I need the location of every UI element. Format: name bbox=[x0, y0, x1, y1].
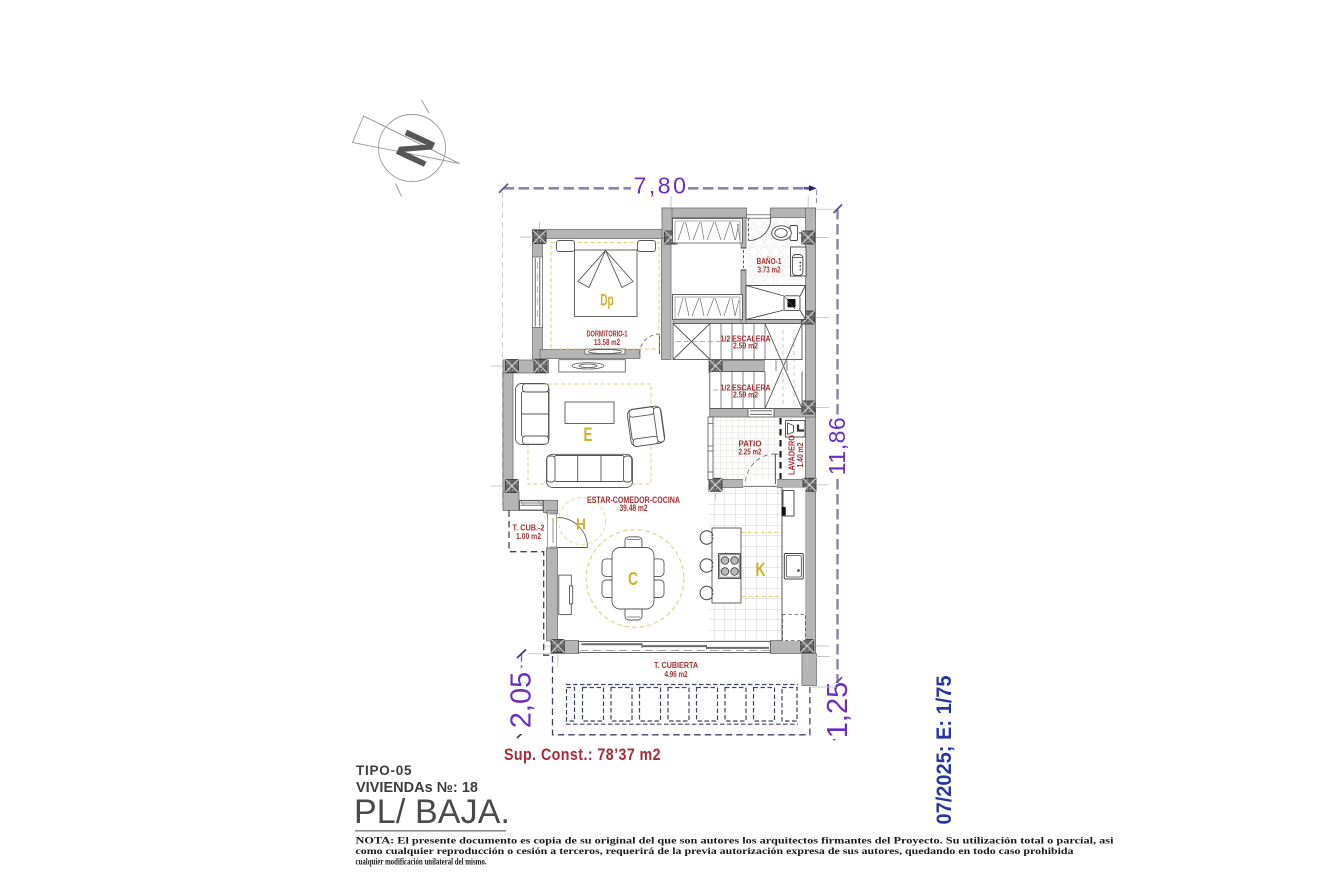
svg-text:2.59 m2: 2.59 m2 bbox=[733, 342, 758, 351]
svg-text:H: H bbox=[576, 517, 586, 534]
svg-text:11,86: 11,86 bbox=[824, 417, 850, 475]
svg-text:T. CUBIERTA: T. CUBIERTA bbox=[654, 661, 698, 670]
svg-text:4.96 m2: 4.96 m2 bbox=[665, 670, 688, 679]
svg-text:3.73 m2: 3.73 m2 bbox=[758, 265, 781, 274]
svg-text:como cualquier reproducción o: como cualquier reproducción o cesión a t… bbox=[356, 847, 1074, 857]
svg-text:NOTA: El presente documento es: NOTA: El presente documento es copia de … bbox=[356, 837, 1114, 847]
svg-text:K: K bbox=[756, 560, 766, 581]
svg-text:1.00 m2: 1.00 m2 bbox=[516, 532, 541, 541]
svg-text:TIPO-05: TIPO-05 bbox=[356, 763, 413, 778]
svg-text:E: E bbox=[584, 424, 593, 446]
svg-text:2.59 m2: 2.59 m2 bbox=[733, 391, 758, 400]
svg-text:7,80: 7,80 bbox=[634, 173, 689, 199]
svg-text:Dp: Dp bbox=[600, 291, 614, 310]
svg-text:C: C bbox=[628, 569, 638, 589]
svg-text:PL/ BAJA.: PL/ BAJA. bbox=[354, 793, 515, 831]
svg-text:cualquier modificación unilate: cualquier modificación unilateral del mi… bbox=[356, 858, 487, 868]
svg-text:2.25 m2: 2.25 m2 bbox=[739, 448, 762, 457]
svg-text:1.40 m2: 1.40 m2 bbox=[796, 442, 805, 467]
svg-text:39.48 m2: 39.48 m2 bbox=[620, 503, 648, 513]
svg-text:07/2025; E: 1/75: 07/2025; E: 1/75 bbox=[932, 675, 956, 824]
svg-text:13.58 m2: 13.58 m2 bbox=[594, 338, 620, 347]
svg-text:1,25: 1,25 bbox=[822, 682, 854, 738]
svg-text:Sup. Const.: 78’37 m2: Sup. Const.: 78’37 m2 bbox=[504, 746, 661, 764]
svg-text:2,05: 2,05 bbox=[506, 672, 538, 728]
